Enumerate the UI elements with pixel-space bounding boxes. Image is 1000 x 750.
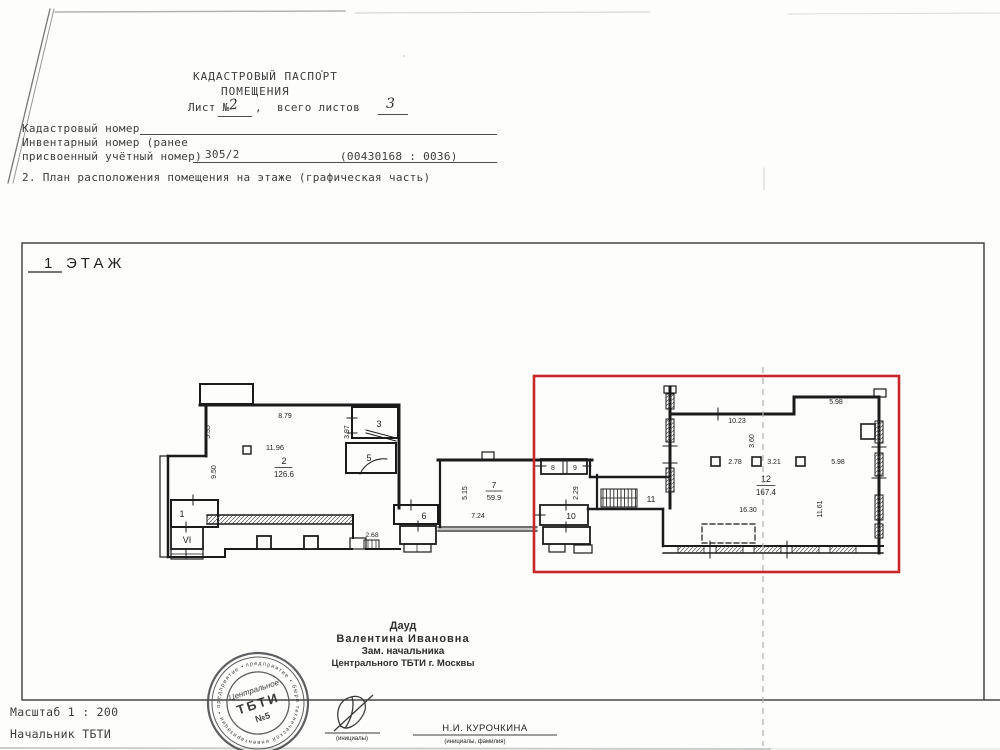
round-stamp: предприятие • бюро технической инвентари…	[195, 640, 321, 750]
floor-title: 1 ЭТАЖ	[28, 255, 125, 272]
scale-label: Масштаб 1 : 200	[10, 705, 118, 719]
dim-2-78: 2.78	[728, 459, 742, 466]
scan-artifacts	[0, 9, 1000, 749]
signed-name: Н.И. КУРОЧКИНА	[442, 723, 528, 734]
room-9-label: 9	[573, 465, 577, 472]
chief-title-label: Начальник ТБТИ	[10, 727, 111, 741]
dim-16-30: 16.30	[739, 507, 757, 514]
floor-plan-drawing: 1 ЭТАЖ	[0, 0, 1000, 750]
room-labels: 1 VI 2 126.6 3 5 6 7 59.9 8 9 10 11 12 1…	[179, 419, 776, 545]
official-surname: Дауд	[308, 620, 498, 633]
room-7-label: 7	[492, 480, 497, 490]
room-2-area: 126.6	[274, 470, 295, 479]
dim-10-23: 10.23	[728, 418, 746, 425]
official-organization: Центрального ТБТИ г. Москвы	[308, 658, 498, 669]
dim-5-98-mid: 5.98	[831, 459, 845, 466]
signed-name-caption: (инициалы, фамилия)	[444, 739, 505, 745]
dim-5-35: 5.35	[205, 425, 212, 439]
dim-3-60: 3.60	[749, 434, 756, 448]
dim-7-24: 7.24	[471, 513, 485, 520]
scanned-document-page: КАДАСТРОВЫЙ ПАСПОРТ ПОМЕЩЕНИЯ Лист № 2 ,…	[0, 0, 1000, 750]
dim-9-50: 9.50	[211, 465, 218, 479]
dim-8-79: 8.79	[278, 413, 292, 420]
room-3-label: 3	[376, 419, 381, 429]
dim-3-21: 3.21	[767, 459, 781, 466]
official-given-names: Валентина Ивановна	[308, 633, 498, 646]
floor-plan-walls	[160, 384, 886, 559]
room-11-label: 11	[647, 494, 656, 504]
room-5-label: 5	[366, 453, 371, 463]
dim-3-97: 3.97	[344, 425, 351, 439]
dim-5-15: 5.15	[462, 486, 469, 500]
dim-5-98-top: 5.98	[829, 399, 843, 406]
room-VI-label: VI	[183, 535, 192, 545]
dim-11-61: 11.61	[817, 500, 824, 517]
room-12-area: 167.4	[756, 488, 777, 497]
room-7-area: 59.9	[487, 493, 502, 502]
stamp-center-line3: №5	[254, 710, 271, 724]
room-2-label: 2	[281, 456, 286, 466]
floor-number: 1	[44, 255, 52, 272]
highlighted-premises-outline	[534, 376, 899, 572]
floor-word: ЭТАЖ	[66, 255, 125, 272]
official-position: Зам. начальника	[308, 646, 498, 658]
room-6-label: 6	[421, 511, 426, 521]
room-1-label: 1	[179, 509, 184, 519]
signature-caption: (инициалы)	[336, 736, 368, 742]
dim-2-68: 2.68	[365, 532, 378, 539]
dim-11-96: 11.96	[266, 443, 284, 452]
dim-2-29: 2.29	[573, 486, 580, 500]
official-name-block: Дауд Валентина Ивановна Зам. начальника …	[308, 620, 498, 669]
room-8-label: 8	[551, 465, 555, 472]
room-10-label: 10	[566, 511, 576, 521]
